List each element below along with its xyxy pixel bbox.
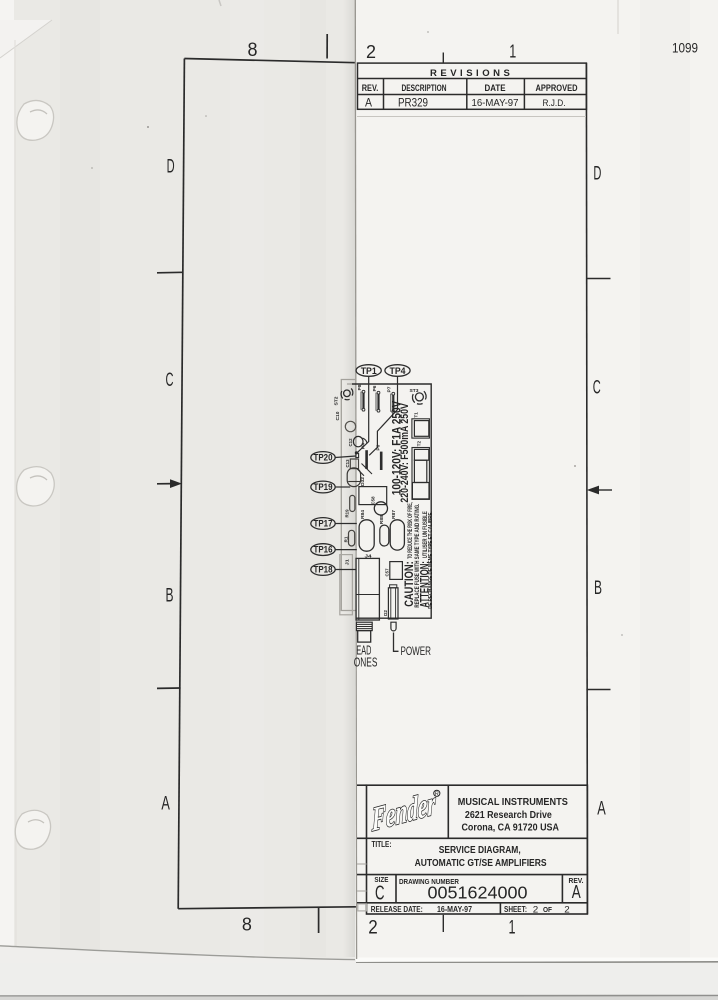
svg-text:J1: J1 [344,559,349,566]
svg-text:DESCRIPTION: DESCRIPTION [402,83,447,93]
svg-text:R.J.D.: R.J.D. [543,98,566,109]
svg-text:TP17: TP17 [314,519,333,529]
svg-text:MUSICAL INSTRUMENTS: MUSICAL INSTRUMENTS [458,796,568,808]
svg-text:A: A [597,799,606,820]
svg-text:SHEET:: SHEET: [504,905,527,914]
svg-text:A: A [161,794,170,815]
svg-text:2: 2 [368,918,378,939]
svg-text:C13: C13 [345,459,350,467]
svg-text:D: D [593,164,601,185]
svg-text:SERVICE DIAGRAM,: SERVICE DIAGRAM, [439,845,521,856]
svg-text:R: R [435,792,439,798]
svg-text:A: A [572,882,581,902]
svg-text:2621 Research Drive: 2621 Research Drive [465,810,552,821]
svg-text:P8: P8 [357,384,362,391]
svg-text:R19: R19 [345,509,350,517]
svg-text:AUTOMATIC GT/SE AMPLIFIERS: AUTOMATIC GT/SE AMPLIFIERS [415,858,547,869]
svg-text:D: D [167,157,175,178]
svg-text:ST3: ST3 [410,388,420,393]
svg-text:1: 1 [509,918,516,939]
svg-text:2: 2 [533,904,539,915]
svg-text:2: 2 [564,904,570,915]
svg-text:C: C [375,883,385,905]
svg-text:R1: R1 [343,536,348,543]
svg-text:R84: R84 [360,509,365,519]
svg-text:P7: P7 [387,386,392,393]
svg-text:ONES: ONES [354,656,378,670]
svg-text:2: 2 [366,42,376,62]
svg-text:T2: T2 [416,440,421,446]
svg-text:8: 8 [242,915,252,935]
svg-text:B: B [166,586,174,607]
svg-text:220-240V: F500mA 250V: 220-240V: F500mA 250V [399,403,411,503]
svg-text:TP18: TP18 [314,565,333,575]
svg-text:C: C [593,378,601,399]
svg-text:16-MAY-97: 16-MAY-97 [437,905,472,914]
svg-text:TP19: TP19 [314,482,333,492]
svg-text:P6: P6 [372,385,377,392]
svg-text:PR329: PR329 [398,98,428,110]
svg-text:RELEASE DATE:: RELEASE DATE: [371,905,423,914]
svg-text:A: A [365,98,372,110]
svg-text:C58: C58 [370,496,375,504]
svg-text:C: C [166,370,174,391]
svg-text:APPROVED: APPROVED [536,83,578,93]
svg-text:T1: T1 [414,411,419,417]
svg-text:DE RECHANGE DE MEME TYPE ET CA: DE RECHANGE DE MEME TYPE ET CALIBRE. [428,511,434,609]
svg-text:J4: J4 [365,554,373,559]
svg-text:B: B [594,578,602,599]
svg-text:R88: R88 [379,515,384,525]
svg-text:8: 8 [248,40,258,61]
svg-text:16-MAY-97: 16-MAY-97 [472,97,519,109]
svg-text:D32: D32 [360,476,365,486]
svg-text:TITLE:: TITLE: [372,840,392,849]
svg-text:C12: C12 [348,438,353,446]
svg-text:0051624000: 0051624000 [428,883,528,903]
svg-text:1099: 1099 [672,40,698,56]
svg-text:OF: OF [543,905,553,914]
svg-text:1: 1 [509,42,516,62]
svg-text:D2: D2 [383,609,388,616]
svg-text:C10: C10 [335,411,340,421]
svg-text:TP20: TP20 [314,453,333,463]
svg-text:Corona, CA 91720 USA: Corona, CA 91720 USA [461,822,559,833]
svg-text:REV.: REV. [362,83,379,93]
svg-text:ST2: ST2 [333,396,338,406]
svg-text:POWER: POWER [401,646,432,658]
svg-text:C57: C57 [384,568,389,576]
svg-text:TP4: TP4 [390,366,407,377]
svg-text:DATE: DATE [485,83,506,93]
svg-text:REVISIONS: REVISIONS [430,68,514,79]
svg-text:TP16: TP16 [314,545,333,555]
svg-text:R87: R87 [391,509,396,519]
svg-text:TP1: TP1 [361,366,378,377]
